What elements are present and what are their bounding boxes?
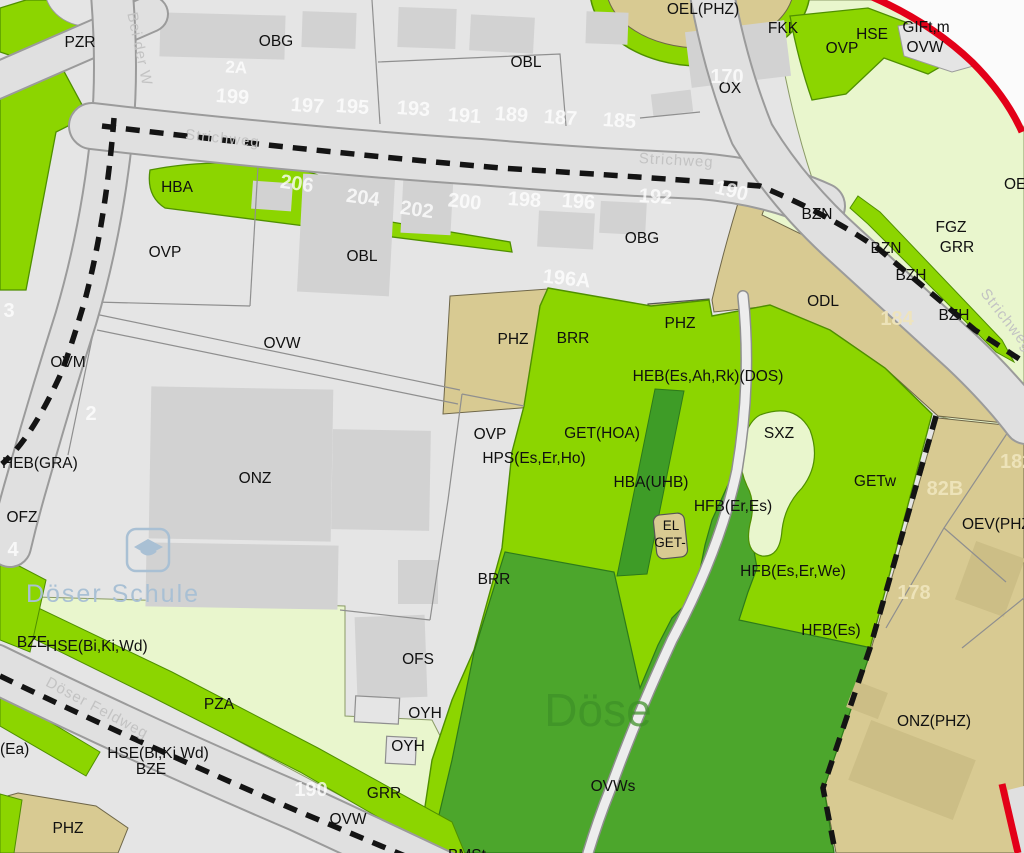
map-label: PZR bbox=[65, 34, 96, 51]
map-label: Döser Schule bbox=[26, 580, 200, 608]
map-label: OYH bbox=[408, 705, 442, 722]
map-label: 198 bbox=[507, 188, 542, 212]
map-label: 2A bbox=[225, 57, 248, 77]
map-label: OYH bbox=[391, 738, 425, 755]
map-label: GET(HOA) bbox=[564, 425, 640, 442]
map-label: BZH bbox=[939, 307, 970, 324]
map-label: 192 bbox=[638, 185, 673, 209]
map-label: OVP bbox=[149, 244, 182, 261]
map-label: HBA bbox=[161, 179, 194, 196]
map-label: 185 bbox=[602, 109, 637, 133]
map-label: 178 bbox=[897, 582, 930, 604]
map-label: BZH bbox=[896, 267, 927, 284]
map-label: HEB(GRA) bbox=[2, 455, 78, 472]
map-label: HSE bbox=[856, 26, 888, 43]
map-label: 193 bbox=[396, 97, 431, 121]
map-label: 196 bbox=[561, 190, 596, 214]
map-label: ONZ bbox=[239, 470, 272, 487]
map-label: SXZ bbox=[764, 425, 794, 442]
map-label: 206 bbox=[279, 171, 315, 197]
map-label: 187 bbox=[543, 106, 578, 130]
map-label: 170 bbox=[710, 66, 743, 88]
map-label: 82B bbox=[927, 478, 964, 500]
map-label: BRR bbox=[557, 330, 590, 347]
map-label: GRR bbox=[367, 785, 401, 802]
zoning-map: PZROBGOBLOEL(PHZ)FKKOVPHSEGIFt,mOVWOXHBA… bbox=[0, 0, 1024, 853]
map-label: OEV(PHZ) bbox=[962, 516, 1024, 533]
map-label: OBL bbox=[510, 54, 541, 71]
map-label: ONZ(PHZ) bbox=[897, 713, 971, 730]
map-label: GET- bbox=[654, 535, 686, 550]
map-label: FGZ bbox=[936, 219, 967, 236]
map-label: 189 bbox=[494, 103, 529, 127]
map-label: 2 bbox=[85, 403, 96, 425]
parcel-oyh-1 bbox=[354, 696, 399, 724]
map-label: OVW bbox=[263, 335, 300, 352]
map-label: PZA bbox=[204, 696, 235, 713]
map-label: 195 bbox=[335, 95, 370, 119]
map-label: OVWs bbox=[591, 778, 636, 795]
map-label: OVP bbox=[826, 40, 859, 57]
map-label: OVM bbox=[50, 354, 85, 371]
map-label: PHZ bbox=[53, 820, 84, 837]
map-label: OFS bbox=[402, 651, 434, 668]
map-label: 3 bbox=[3, 300, 14, 322]
map-label: HBA(UHB) bbox=[614, 474, 689, 491]
map-label: FKK bbox=[768, 20, 799, 37]
map-canvas[interactable]: PZROBGOBLOEL(PHZ)FKKOVPHSEGIFt,mOVWOXHBA… bbox=[0, 0, 1024, 853]
map-label: HSE(Bi,Ki,Wd) bbox=[46, 638, 148, 655]
map-label: HFB(Er,Es) bbox=[694, 498, 772, 515]
map-label: EL bbox=[663, 518, 680, 533]
map-label: BZN bbox=[871, 240, 902, 257]
map-label: BMSt bbox=[448, 847, 487, 853]
map-label: OVP bbox=[474, 426, 507, 443]
map-label: OVW bbox=[906, 39, 943, 56]
map-label: HFB(Es) bbox=[801, 622, 860, 639]
map-label: GIFt,m bbox=[902, 19, 949, 36]
map-label: (Ea) bbox=[0, 741, 29, 758]
map-label: 4 bbox=[7, 539, 19, 561]
map-label: OE bbox=[1004, 176, 1024, 193]
map-label: PHZ bbox=[498, 331, 529, 348]
map-label: OBL bbox=[346, 248, 377, 265]
map-label: Döse bbox=[544, 684, 651, 736]
map-label: BZN bbox=[802, 206, 833, 223]
map-label: OBG bbox=[625, 230, 659, 247]
map-label: 182 bbox=[1000, 451, 1024, 473]
map-label: 197 bbox=[290, 94, 325, 118]
map-label: ODL bbox=[807, 293, 839, 310]
map-label: OEL(PHZ) bbox=[667, 1, 739, 18]
map-label: 199 bbox=[215, 85, 250, 109]
map-label: 200 bbox=[447, 189, 482, 214]
map-label: GRR bbox=[940, 239, 974, 256]
map-label: OFZ bbox=[7, 509, 38, 526]
map-label: HSE(Bi,Ki,Wd) bbox=[107, 745, 209, 762]
map-label: 191 bbox=[447, 104, 482, 128]
map-label: 202 bbox=[399, 197, 435, 223]
map-label: HEB(Es,Ah,Rk)(DOS) bbox=[633, 368, 784, 385]
map-label: OBG bbox=[259, 33, 293, 50]
map-label: GETw bbox=[854, 473, 897, 490]
map-label: BZE bbox=[136, 761, 166, 778]
map-label: 190 bbox=[294, 779, 327, 801]
map-label: HPS(Es,Er,Ho) bbox=[482, 450, 585, 467]
map-label: BRR bbox=[478, 571, 511, 588]
map-label: OVW bbox=[329, 811, 366, 828]
map-label: BZE bbox=[17, 634, 47, 651]
map-label: PHZ bbox=[665, 315, 696, 332]
map-label: 184 bbox=[880, 308, 914, 330]
map-label: HFB(Es,Er,We) bbox=[740, 563, 846, 580]
